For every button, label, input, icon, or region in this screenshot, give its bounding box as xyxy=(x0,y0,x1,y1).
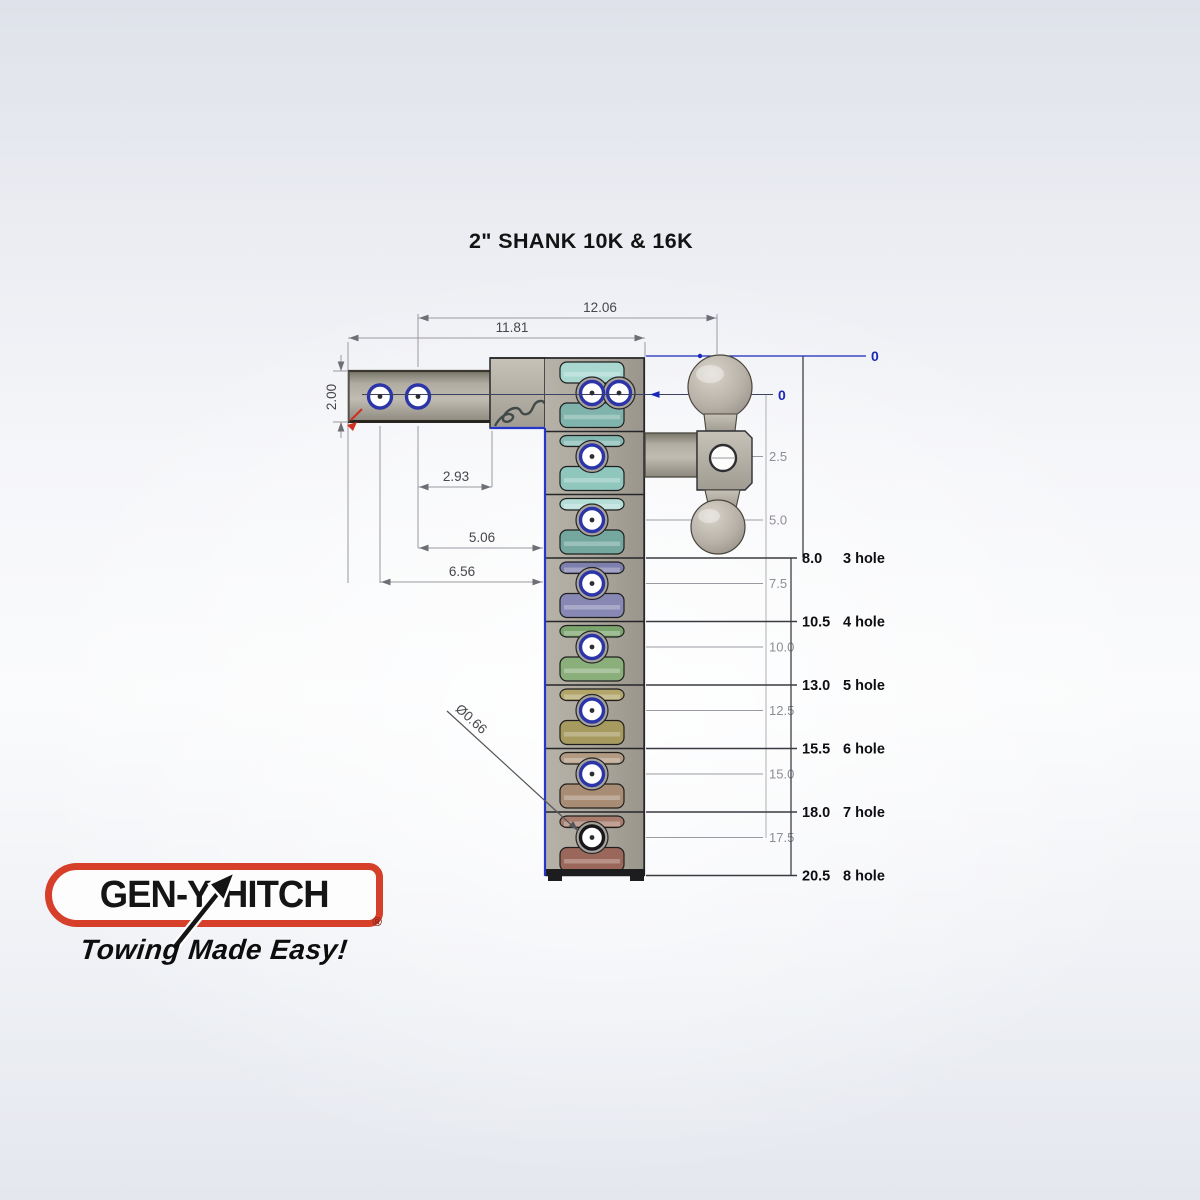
brand-wordmark: GEN-YHITCH xyxy=(100,876,329,914)
brand-y: Y xyxy=(187,874,210,916)
brand-prefix: GEN- xyxy=(100,874,187,916)
hole-count-label: 8 hole xyxy=(843,869,885,885)
drop-value-label: 20.5 xyxy=(802,869,830,885)
brand-tagline: Towing Made Easy! xyxy=(43,934,384,966)
zero-hole-label: 0 xyxy=(778,387,786,403)
product-diagram-page: 2" SHANK 10K & 16K xyxy=(0,0,1200,1200)
hitch-ball-top xyxy=(688,355,752,419)
drop-value-label: 13.0 xyxy=(802,678,830,694)
registered-trademark: ® xyxy=(372,914,382,929)
hole-count-label: 3 hole xyxy=(843,551,885,567)
drop-value-label: 15.5 xyxy=(802,742,830,758)
rise-ordinate-label: 2.5 xyxy=(769,449,787,464)
dim-5-06: 5.06 xyxy=(469,530,495,545)
adjustment-rack xyxy=(369,358,646,881)
rise-ordinate-label: 5.0 xyxy=(769,513,787,528)
dual-ball-mount xyxy=(645,355,752,554)
hitch-ball-bottom xyxy=(691,500,745,554)
hole-count-label: 7 hole xyxy=(843,805,885,821)
drop-value-label: 18.0 xyxy=(802,805,830,821)
mount-arm xyxy=(645,433,697,477)
dim-2-93: 2.93 xyxy=(443,469,469,484)
hole-count-label: 6 hole xyxy=(843,742,885,758)
dim-hole-diameter: Ø0.66 xyxy=(453,701,490,737)
dim-2-00: 2.00 xyxy=(324,384,339,410)
logo-box: GEN-YHITCH ® xyxy=(45,863,383,927)
zero-top-label: 0 xyxy=(871,348,879,364)
ball-top-neck xyxy=(704,414,737,431)
drop-value-label: 8.0 xyxy=(802,551,822,567)
hole-count-label: 4 hole xyxy=(843,615,885,631)
drop-value-label: 10.5 xyxy=(802,615,830,631)
brand-suffix: HITCH xyxy=(222,874,329,916)
technical-drawing: 2.55.07.510.012.515.017.5 8.03 hole10.54… xyxy=(0,0,1200,1200)
rise-ordinate-label: 7.5 xyxy=(769,576,787,591)
dim-12-06: 12.06 xyxy=(583,300,617,315)
dim-11-81: 11.81 xyxy=(496,320,529,335)
hole-count-label: 5 hole xyxy=(843,678,885,694)
gen-y-hitch-logo: GEN-YHITCH ® Towing Made Easy! xyxy=(45,863,383,966)
dim-6-56: 6.56 xyxy=(449,564,475,579)
